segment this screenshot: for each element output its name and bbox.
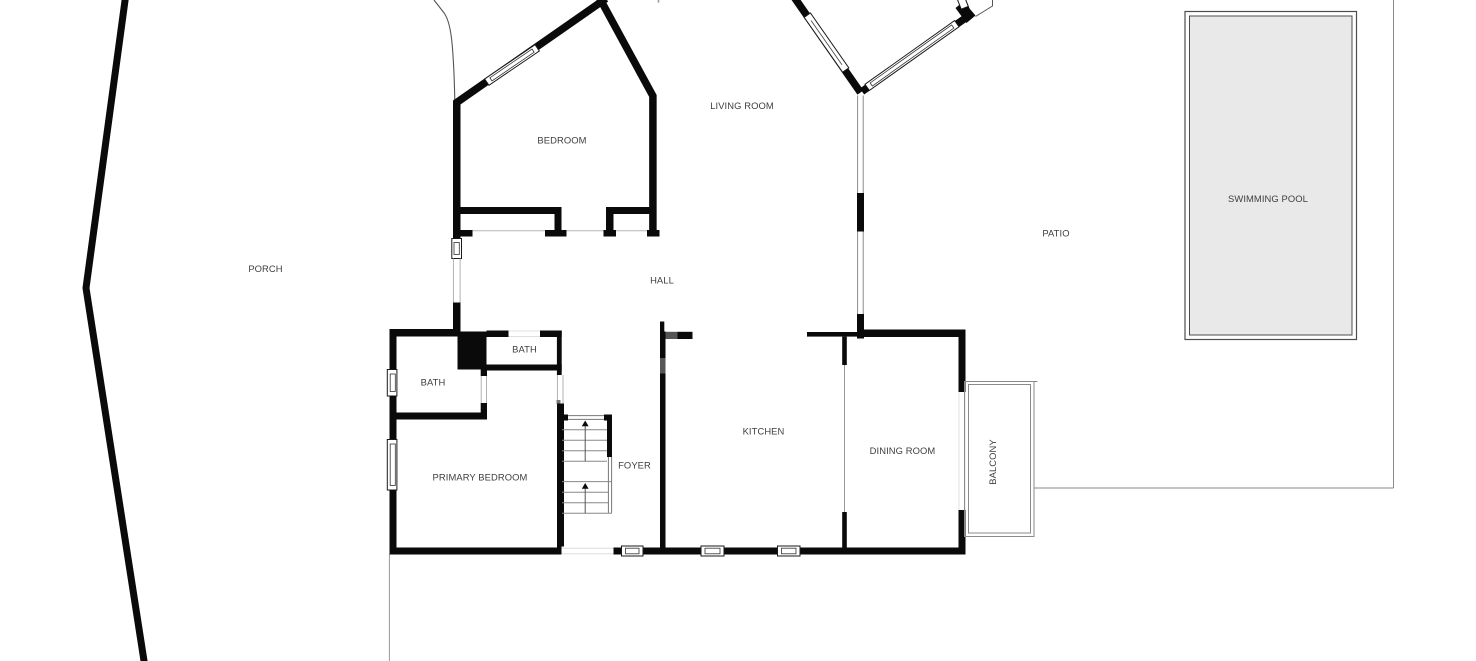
svg-text:BATH: BATH	[512, 344, 537, 355]
svg-text:PORCH: PORCH	[248, 263, 282, 274]
svg-text:HALL: HALL	[650, 275, 674, 286]
svg-text:FOYER: FOYER	[618, 460, 651, 471]
svg-text:LIVING ROOM: LIVING ROOM	[710, 100, 774, 111]
svg-text:SWIMMING POOL: SWIMMING POOL	[1228, 193, 1308, 204]
svg-text:BEDROOM: BEDROOM	[537, 135, 586, 146]
svg-text:KITCHEN: KITCHEN	[743, 426, 785, 437]
svg-text:PRIMARY BEDROOM: PRIMARY BEDROOM	[433, 472, 528, 483]
svg-text:PATIO: PATIO	[1042, 228, 1069, 239]
svg-text:DINING ROOM: DINING ROOM	[870, 445, 936, 456]
svg-text:BALCONY: BALCONY	[987, 439, 998, 485]
svg-text:BATH: BATH	[421, 377, 446, 388]
